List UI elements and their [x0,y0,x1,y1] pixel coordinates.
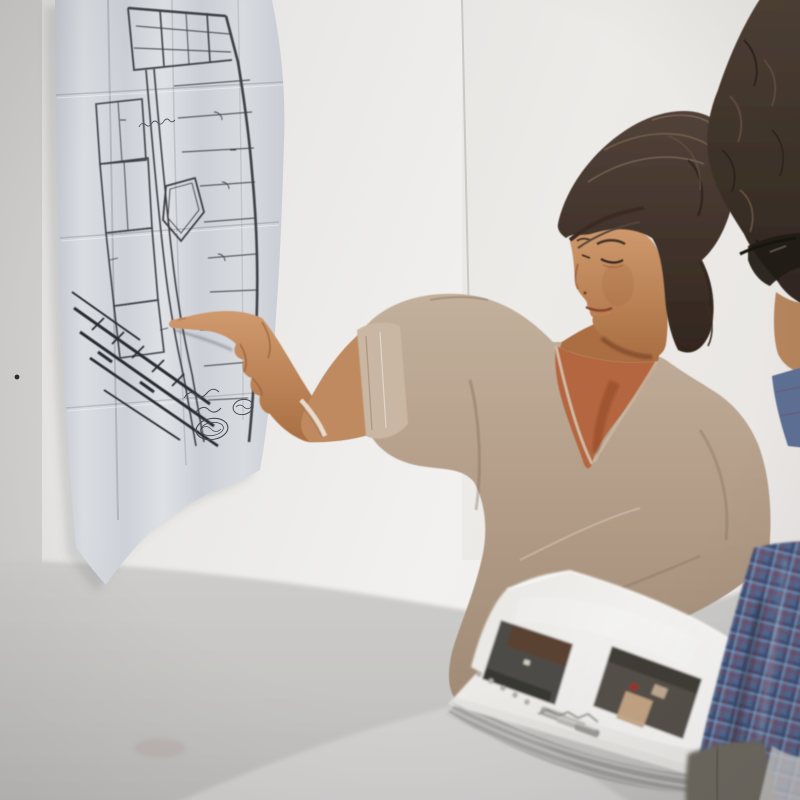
photo-scene: Photograph: a woman with dark hair in a … [0,0,800,800]
photo-canvas [0,0,800,800]
vignette [0,0,800,800]
